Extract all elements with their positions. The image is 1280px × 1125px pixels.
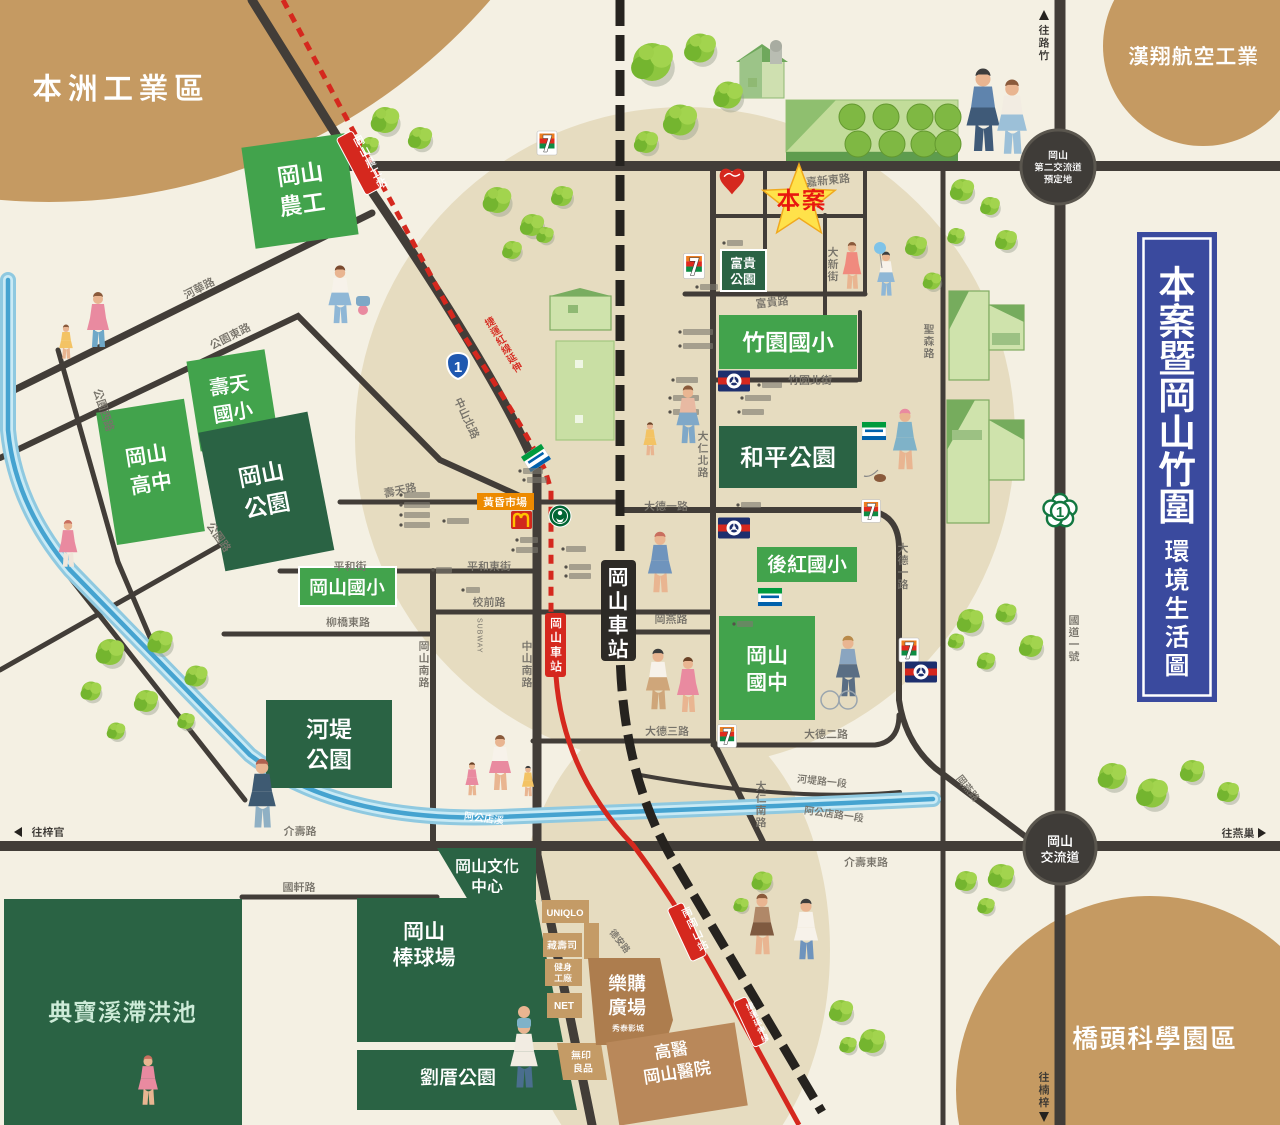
svg-text:1: 1 bbox=[454, 359, 462, 376]
svg-text:NET: NET bbox=[554, 1001, 574, 1012]
svg-text:SUBWAY: SUBWAY bbox=[476, 618, 483, 654]
svg-text:1: 1 bbox=[1056, 504, 1064, 521]
svg-text:UNIQLO: UNIQLO bbox=[547, 908, 584, 919]
